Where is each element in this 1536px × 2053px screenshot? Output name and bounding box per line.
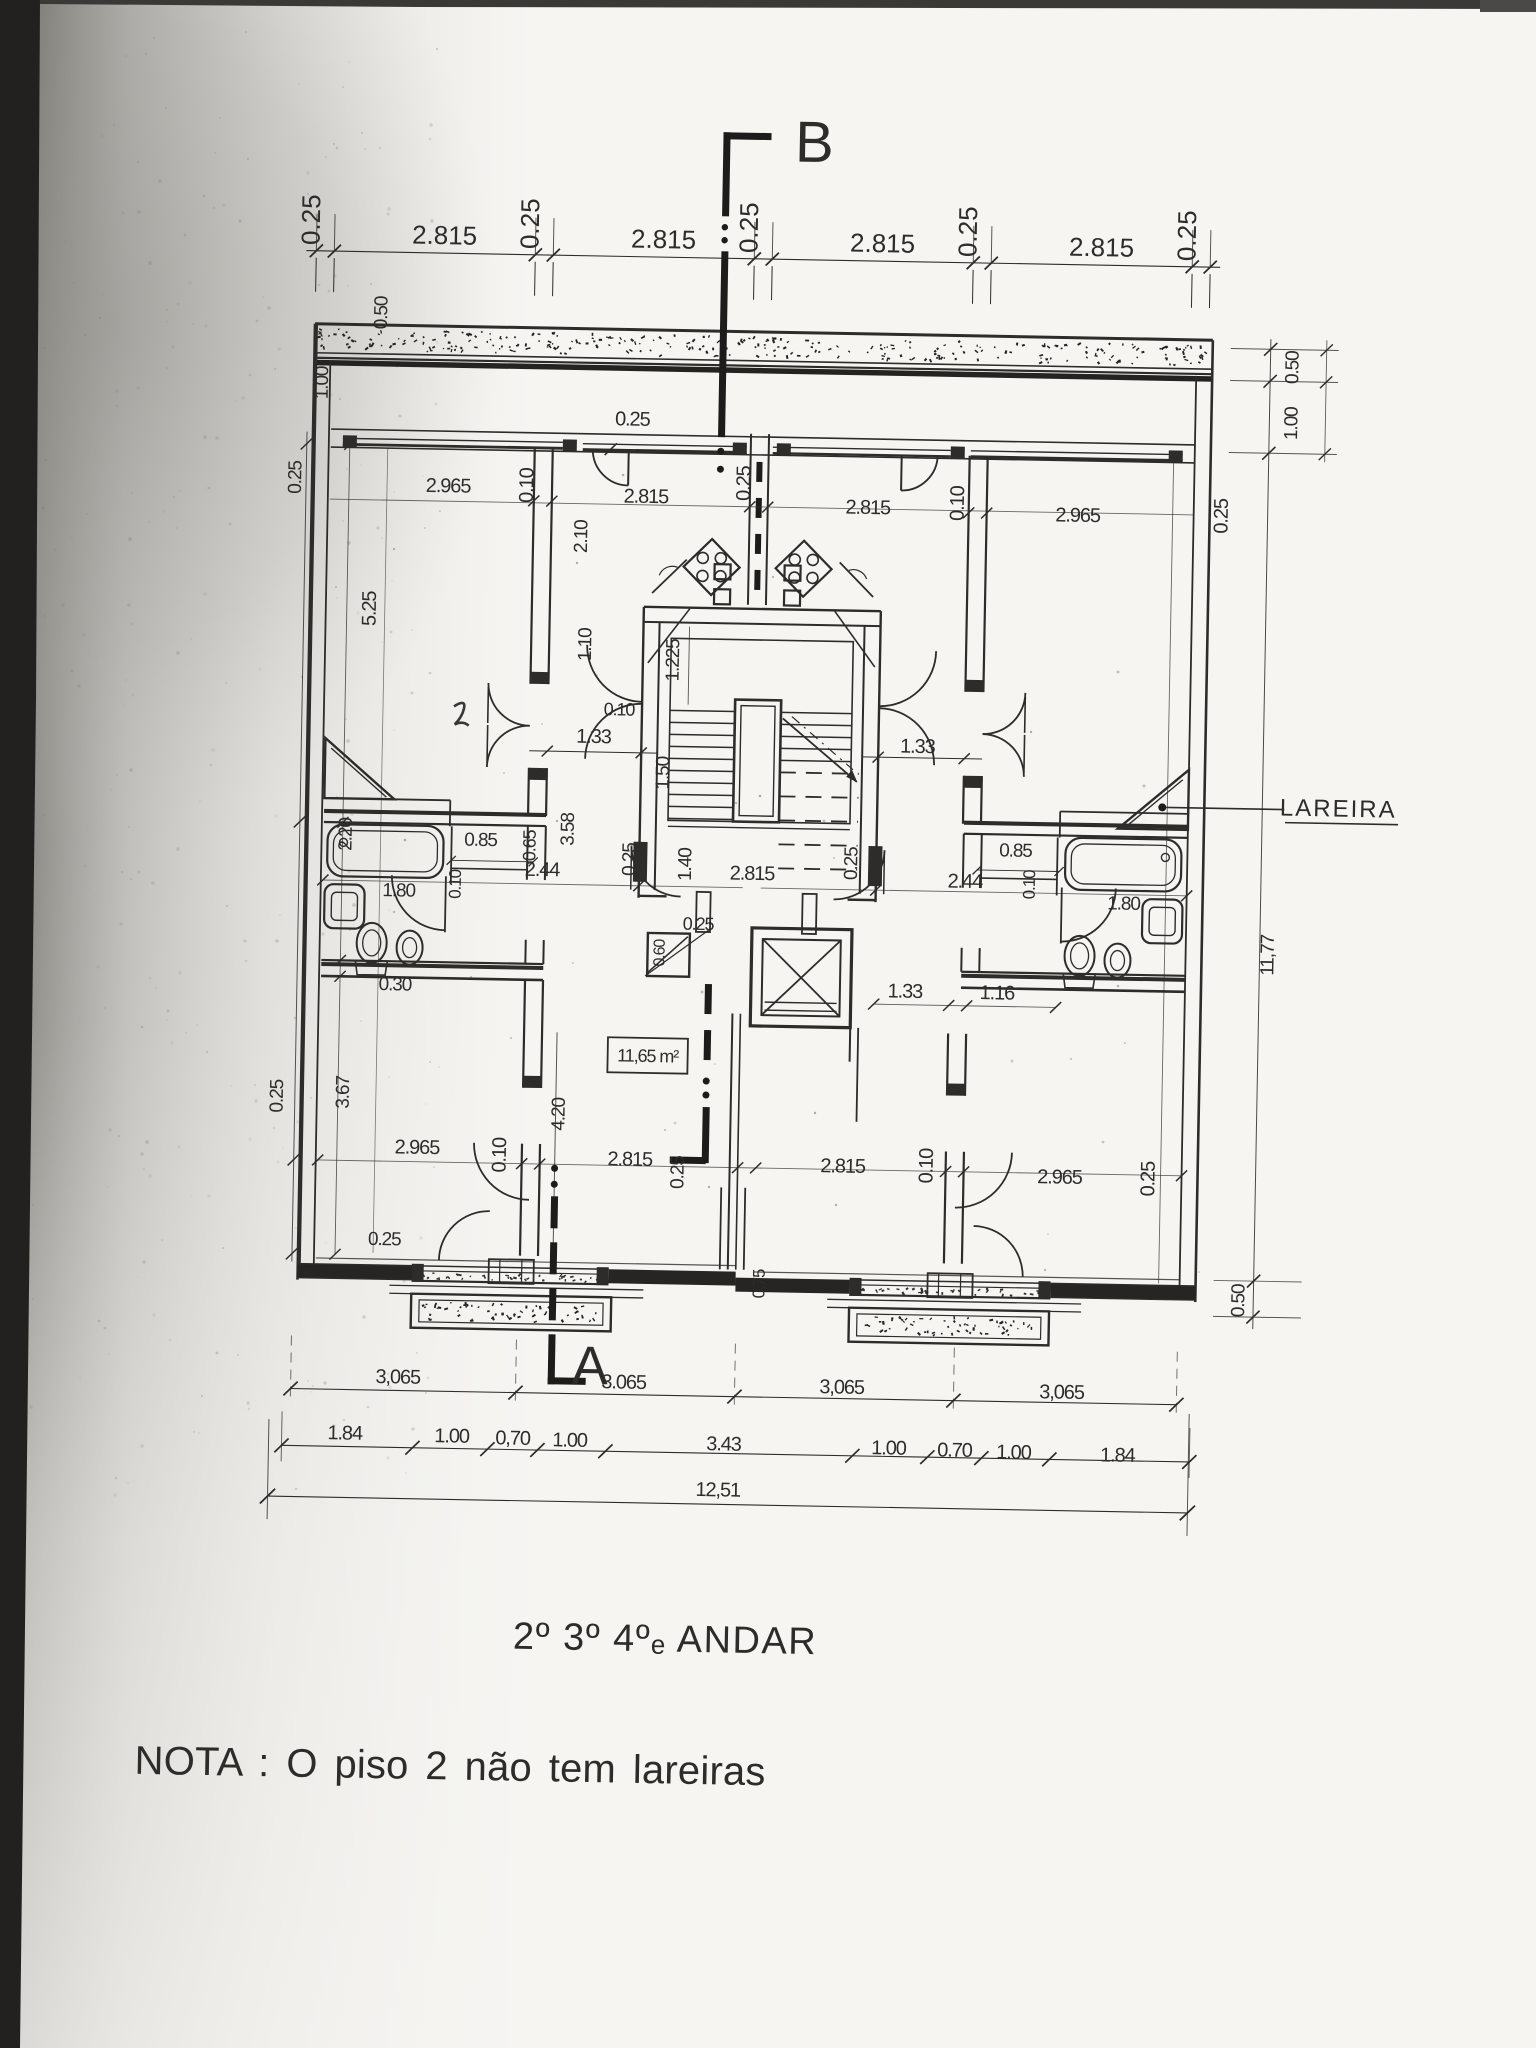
svg-text:0.25: 0.25	[615, 408, 651, 431]
svg-text:0,70: 0,70	[495, 1427, 531, 1450]
svg-text:1.84: 1.84	[327, 1422, 363, 1445]
svg-text:2º 3º 4ºₑ ANDAR: 2º 3º 4ºₑ ANDAR	[513, 1616, 818, 1664]
svg-text:0.30: 0.30	[378, 974, 411, 996]
svg-text:0.85: 0.85	[999, 840, 1032, 862]
svg-text:2.815: 2.815	[845, 497, 891, 520]
svg-text:5.25: 5.25	[358, 590, 381, 626]
svg-text:3,065: 3,065	[1039, 1381, 1085, 1404]
svg-text:0.25: 0.25	[267, 1079, 289, 1112]
svg-text:1.00: 1.00	[1281, 407, 1303, 440]
svg-text:2.815: 2.815	[850, 228, 916, 259]
svg-text:1.00: 1.00	[312, 366, 334, 399]
svg-text:0.25: 0.25	[952, 206, 983, 257]
svg-text:0,75: 0,75	[749, 1269, 769, 1299]
svg-text:1.00: 1.00	[434, 1425, 470, 1448]
svg-text:2.965: 2.965	[1055, 504, 1101, 527]
svg-text:2.815: 2.815	[607, 1148, 653, 1171]
svg-text:2.815: 2.815	[1069, 232, 1135, 263]
svg-text:0.70: 0.70	[937, 1439, 973, 1462]
svg-text:0.10: 0.10	[488, 1137, 511, 1173]
svg-text:1.33: 1.33	[900, 736, 936, 759]
svg-text:1.50: 1.50	[653, 756, 675, 789]
svg-text:0.25: 0.25	[841, 847, 863, 880]
svg-text:1.33: 1.33	[887, 980, 923, 1003]
svg-text:2.10: 2.10	[571, 520, 593, 553]
svg-text:4.20: 4.20	[548, 1097, 570, 1130]
svg-text:0.50: 0.50	[1282, 351, 1304, 384]
svg-text:0.25: 0.25	[1171, 210, 1202, 261]
svg-text:1.40: 1.40	[675, 848, 697, 881]
svg-text:3.43: 3.43	[706, 1433, 742, 1456]
svg-text:0.25: 0.25	[285, 460, 307, 493]
svg-text:1.80: 1.80	[382, 880, 415, 902]
svg-text:2.815: 2.815	[730, 862, 776, 885]
svg-text:0.10: 0.10	[1020, 870, 1040, 900]
svg-text:3.67: 3.67	[333, 1075, 355, 1108]
svg-text:0.10: 0.10	[446, 869, 466, 899]
svg-text:3,065: 3,065	[375, 1366, 421, 1389]
svg-text:3,065: 3,065	[819, 1376, 865, 1399]
svg-text:0.25: 0.25	[295, 194, 326, 245]
svg-text:1.80: 1.80	[1107, 893, 1140, 915]
svg-text:2.815: 2.815	[631, 224, 697, 255]
svg-text:0.60: 0.60	[651, 938, 669, 966]
svg-text:0.10: 0.10	[915, 1148, 938, 1184]
svg-text:1.00: 1.00	[996, 1441, 1032, 1464]
svg-text:3.065: 3.065	[601, 1371, 647, 1394]
svg-text:3.58: 3.58	[557, 812, 579, 845]
svg-text:2.20: 2.20	[335, 817, 357, 850]
svg-text:0.10: 0.10	[947, 485, 970, 521]
svg-text:11,77: 11,77	[1257, 934, 1279, 976]
svg-text:11,65 m²: 11,65 m²	[617, 1045, 679, 1066]
svg-text:0.25: 0.25	[667, 1156, 689, 1189]
svg-text:0.25: 0.25	[1210, 498, 1233, 534]
svg-text:1.225: 1.225	[663, 639, 685, 682]
svg-text:2.44: 2.44	[947, 870, 983, 893]
svg-text:2.815: 2.815	[820, 1155, 866, 1178]
svg-text:LAREIRA: LAREIRA	[1280, 795, 1397, 824]
svg-text:0.50: 0.50	[371, 296, 393, 329]
svg-text:0.50: 0.50	[1228, 1284, 1250, 1317]
svg-text:2.965: 2.965	[394, 1136, 440, 1159]
svg-text:0.65: 0.65	[519, 829, 540, 861]
svg-text:0.25: 0.25	[733, 202, 764, 253]
svg-text:2.965: 2.965	[426, 475, 472, 498]
svg-text:2.815: 2.815	[623, 485, 669, 508]
svg-text:0.10: 0.10	[516, 467, 539, 503]
svg-text:12,51: 12,51	[695, 1479, 741, 1502]
svg-text:B: B	[794, 110, 834, 176]
svg-text:1.10: 1.10	[575, 628, 597, 661]
svg-text:0.25: 0.25	[1137, 1161, 1160, 1197]
svg-text:2.815: 2.815	[412, 220, 478, 251]
svg-text:0.25: 0.25	[733, 465, 756, 501]
svg-text:1.16: 1.16	[979, 982, 1015, 1005]
svg-text:0.85: 0.85	[464, 830, 497, 852]
svg-text:1.00: 1.00	[871, 1437, 907, 1460]
svg-text:1.00: 1.00	[552, 1429, 588, 1452]
svg-text:0.25: 0.25	[683, 914, 715, 935]
svg-text:0.10: 0.10	[604, 699, 636, 720]
svg-text:0.25: 0.25	[514, 198, 545, 249]
svg-text:1.84: 1.84	[1100, 1444, 1136, 1467]
svg-text:2.965: 2.965	[1037, 1166, 1083, 1189]
